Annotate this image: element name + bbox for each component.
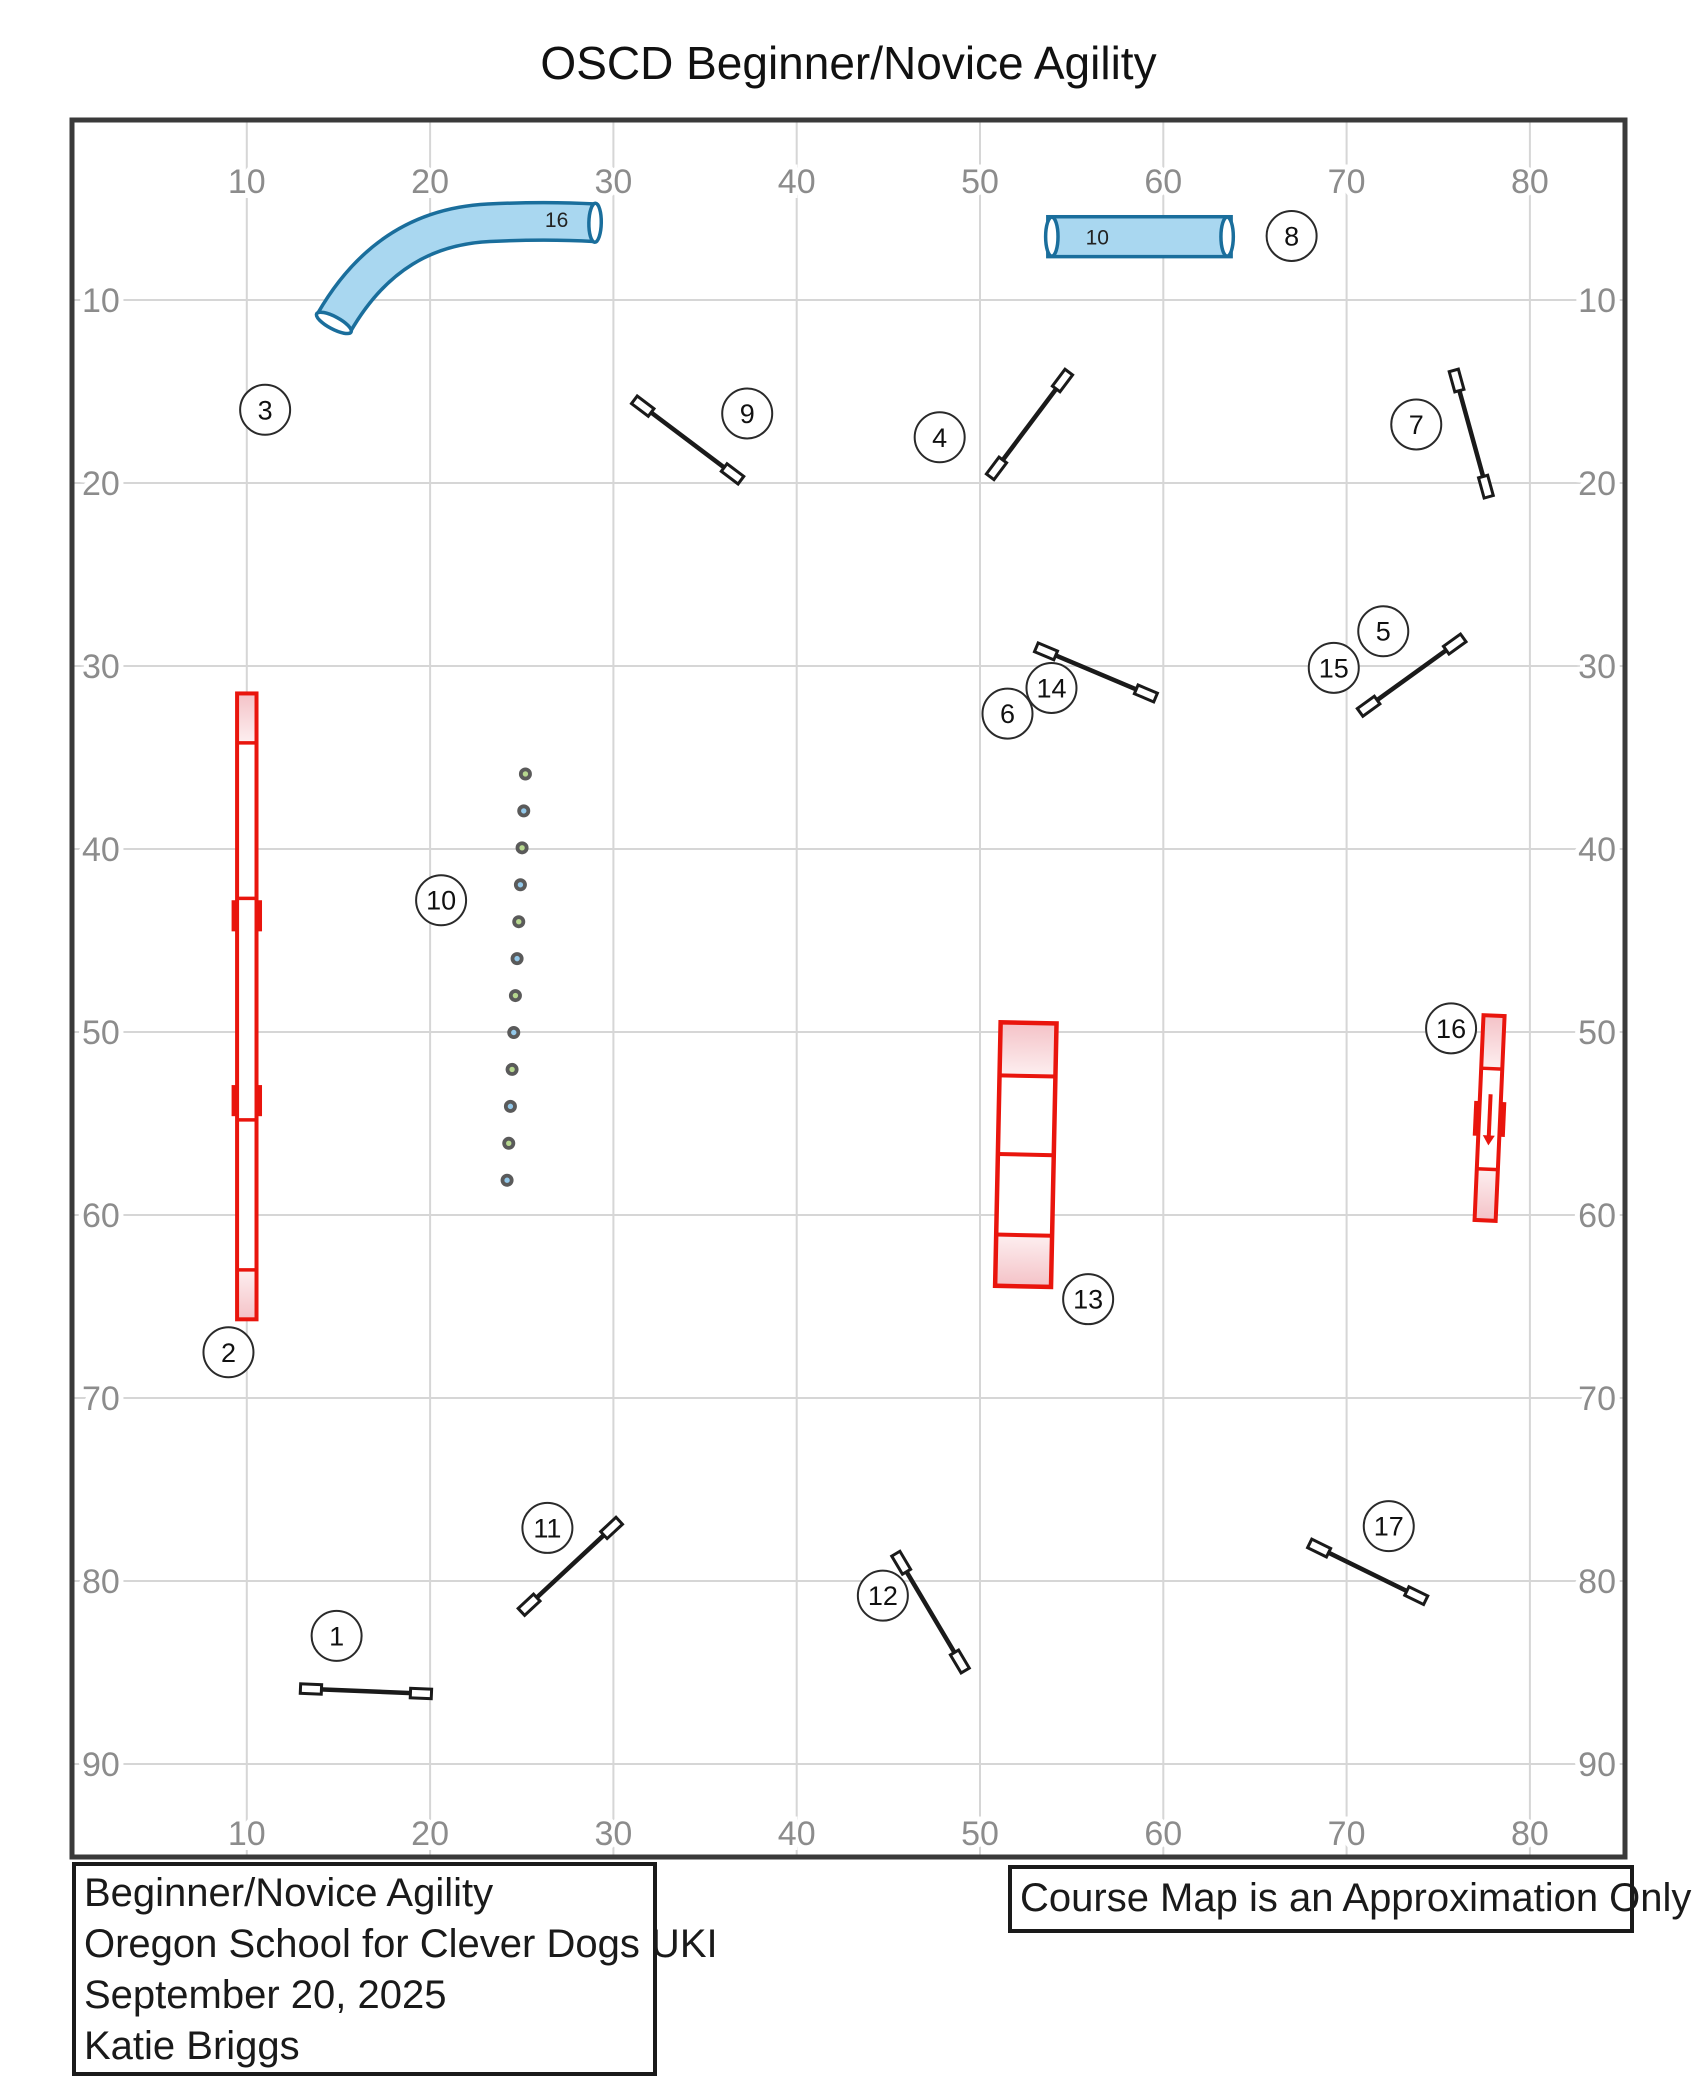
obstacle-number-badge: 3	[240, 385, 290, 435]
info-box-line: Katie Briggs	[84, 2021, 653, 2072]
jump-17	[1308, 1539, 1428, 1604]
axis-tick-label-right: 60	[1578, 1197, 1616, 1235]
axis-tick-label-bottom: 40	[778, 1815, 816, 1853]
badge-number: 13	[1073, 1285, 1103, 1315]
axis-tick-label-right: 70	[1578, 1380, 1616, 1418]
tunnel-mouth	[1221, 217, 1233, 256]
axis-tick-label-top: 30	[594, 163, 632, 201]
grid-layer: 1010202030304040505060607070808010102020…	[72, 120, 1625, 1857]
badge-number: 5	[1376, 617, 1391, 647]
jump-bar	[1319, 1548, 1416, 1596]
jump-12	[892, 1551, 970, 1673]
obstacle-number-badge: 6	[982, 689, 1032, 739]
info-box: Beginner/Novice AgilityOregon School for…	[72, 1862, 657, 2076]
page: OSCD Beginner/Novice Agility 10102020303…	[0, 0, 1692, 2100]
obstacle-number-badge: 12	[858, 1571, 908, 1621]
tunnel-body	[1048, 217, 1231, 257]
obstacle-number-badge: 15	[1309, 643, 1359, 693]
axis-tick-label-left: 70	[82, 1380, 120, 1418]
badge-number: 12	[868, 1581, 898, 1611]
weave-pole	[517, 843, 526, 852]
note-box: Course Map is an Approximation Only	[1008, 1865, 1634, 1933]
obstacle-number-badge: 1	[312, 1611, 362, 1661]
dog-walk-contact-bottom	[237, 1270, 256, 1319]
axis-tick-label-bottom: 10	[228, 1815, 266, 1853]
info-box-line: Oregon School for Clever Dogs UKI	[84, 1919, 653, 1970]
a-frame-section-line	[1000, 1075, 1056, 1076]
jump-wing-cap	[892, 1551, 911, 1574]
axis-tick-label-right: 50	[1578, 1014, 1616, 1052]
obstacle-number-badge: 14	[1026, 663, 1076, 713]
info-box-line: Beginner/Novice Agility	[84, 1868, 653, 1919]
badge-number: 7	[1409, 410, 1424, 440]
weave-pole	[506, 1102, 515, 1111]
axis-tick-label-left: 60	[82, 1197, 120, 1235]
jump-wing-cap	[410, 1688, 431, 1698]
jump-wing-cap	[950, 1650, 969, 1673]
badge-number: 9	[740, 399, 755, 429]
jump-wing-cap	[986, 457, 1006, 479]
axis-tick-label-left: 90	[82, 1746, 120, 1784]
note-text: Course Map is an Approximation Only	[1020, 1876, 1691, 1920]
axis-tick-label-right: 20	[1578, 465, 1616, 503]
jump-wing-cap	[1479, 475, 1494, 498]
badge-number: 11	[533, 1513, 561, 1543]
obstacle-layer: 1610	[232, 203, 1510, 1699]
badge-number: 17	[1374, 1512, 1404, 1542]
weave-pole	[504, 1139, 513, 1148]
axis-tick-label-right: 90	[1578, 1746, 1616, 1784]
obstacle-number-badge: 7	[1391, 399, 1441, 449]
jump-wing-cap	[1405, 1587, 1428, 1605]
badge-number: 2	[221, 1338, 236, 1368]
weave-pole	[521, 769, 530, 778]
tunnel-body	[334, 221, 595, 322]
badge-number: 1	[329, 1621, 344, 1651]
tunnel-length-label: 10	[1086, 226, 1109, 249]
jump-wing-cap	[631, 396, 653, 416]
weave-pole	[516, 880, 525, 889]
axis-tick-label-top: 10	[228, 163, 266, 201]
badge-number: 4	[932, 423, 947, 453]
plot-border	[72, 120, 1625, 1857]
jump-wing-cap	[518, 1594, 540, 1615]
weave-pole	[519, 806, 528, 815]
jump-4	[986, 369, 1072, 479]
jump-wing-cap	[721, 464, 743, 484]
axis-tick-label-bottom: 30	[594, 1815, 632, 1853]
axis-tick-label-left: 80	[82, 1563, 120, 1601]
axis-tick-label-left: 40	[82, 831, 120, 869]
axis-tick-label-right: 30	[1578, 648, 1616, 686]
jump-bar	[643, 406, 733, 474]
tunnel-mouth	[1046, 217, 1058, 256]
teeter	[1469, 1015, 1510, 1221]
course-map: 1010202030304040505060607070808010102020…	[0, 0, 1692, 2100]
jump-bar	[996, 381, 1062, 469]
info-box-line: September 20, 2025	[84, 1970, 653, 2021]
a-frame-contact-bottom	[995, 1235, 1052, 1287]
badge-number: 16	[1436, 1014, 1466, 1044]
axis-tick-label-bottom: 60	[1144, 1815, 1182, 1853]
axis-tick-label-bottom: 80	[1511, 1815, 1549, 1853]
weave-pole	[514, 917, 523, 926]
a-frame	[995, 1022, 1056, 1287]
badge-layer: 1234567891011121314151617	[203, 211, 1476, 1661]
jump-1	[300, 1684, 431, 1699]
obstacle-number-badge: 10	[416, 875, 466, 925]
jump-wing-cap	[1357, 696, 1380, 716]
weave-pole	[502, 1176, 511, 1185]
obstacle-number-badge: 5	[1358, 606, 1408, 656]
axis-tick-label-left: 50	[82, 1014, 120, 1052]
jump-bar	[311, 1689, 421, 1694]
axis-tick-label-top: 70	[1328, 163, 1366, 201]
axis-tick-label-top: 60	[1144, 163, 1182, 201]
jump-wing-cap	[1449, 369, 1464, 392]
dog-walk-plank	[237, 693, 256, 1319]
teeter-direction-arrow-icon	[1489, 1094, 1491, 1137]
obstacle-number-badge: 8	[1267, 211, 1317, 261]
axis-tick-label-top: 20	[411, 163, 449, 201]
weave-pole	[509, 1028, 518, 1037]
jump-wing-cap	[601, 1517, 623, 1538]
axis-tick-label-left: 10	[82, 282, 120, 320]
jump-wing-cap	[1052, 369, 1072, 391]
obstacle-number-badge: 2	[203, 1327, 253, 1377]
axis-tick-label-top: 50	[961, 163, 999, 201]
dog-walk	[232, 693, 262, 1319]
axis-tick-label-bottom: 20	[411, 1815, 449, 1853]
axis-tick-label-left: 30	[82, 648, 120, 686]
badge-number: 8	[1284, 221, 1299, 251]
jump-bar	[901, 1563, 960, 1662]
weave-poles	[502, 769, 530, 1184]
axis-tick-label-right: 80	[1578, 1563, 1616, 1601]
teeter-section-line	[1481, 1068, 1502, 1069]
obstacle-number-badge: 9	[722, 388, 772, 438]
jump-7	[1449, 369, 1493, 498]
axis-tick-label-left: 20	[82, 465, 120, 503]
badge-number: 3	[258, 395, 273, 425]
teeter-section-line	[1477, 1169, 1498, 1170]
weave-pole	[512, 954, 521, 963]
a-frame-contact-top	[1000, 1022, 1057, 1076]
weave-pole	[511, 991, 520, 1000]
badge-number: 15	[1319, 653, 1349, 683]
dog-walk-contact-top	[237, 693, 256, 742]
obstacle-number-badge: 13	[1063, 1274, 1113, 1324]
jump-wing-cap	[1134, 685, 1157, 702]
jump-bar	[1457, 381, 1486, 487]
axis-tick-label-top: 80	[1511, 163, 1549, 201]
badge-number: 10	[426, 886, 456, 916]
obstacle-number-badge: 11	[522, 1503, 572, 1553]
tunnel-mouth	[589, 203, 602, 242]
axis-tick-label-bottom: 70	[1328, 1815, 1366, 1853]
badge-number: 14	[1036, 673, 1066, 703]
a-frame-section-line	[996, 1235, 1052, 1236]
obstacle-number-badge: 4	[915, 412, 965, 462]
obstacle-number-badge: 17	[1364, 1501, 1414, 1551]
curved-tunnel: 16	[314, 203, 602, 337]
jump-wing-cap	[1034, 643, 1057, 660]
axis-tick-label-right: 10	[1578, 282, 1616, 320]
weave-pole	[507, 1065, 516, 1074]
axis-tick-label-bottom: 50	[961, 1815, 999, 1853]
jump-wing-cap	[1443, 634, 1466, 654]
straight-tunnel: 10	[1046, 217, 1234, 257]
jump-wing-cap	[300, 1684, 321, 1694]
tunnel-length-label: 16	[545, 209, 568, 232]
jump-wing-cap	[1308, 1539, 1331, 1557]
obstacle-number-badge: 16	[1426, 1003, 1476, 1053]
badge-number: 6	[1000, 699, 1015, 729]
axis-tick-label-top: 40	[778, 163, 816, 201]
axis-tick-label-right: 40	[1578, 831, 1616, 869]
a-frame-section-line	[998, 1154, 1054, 1155]
